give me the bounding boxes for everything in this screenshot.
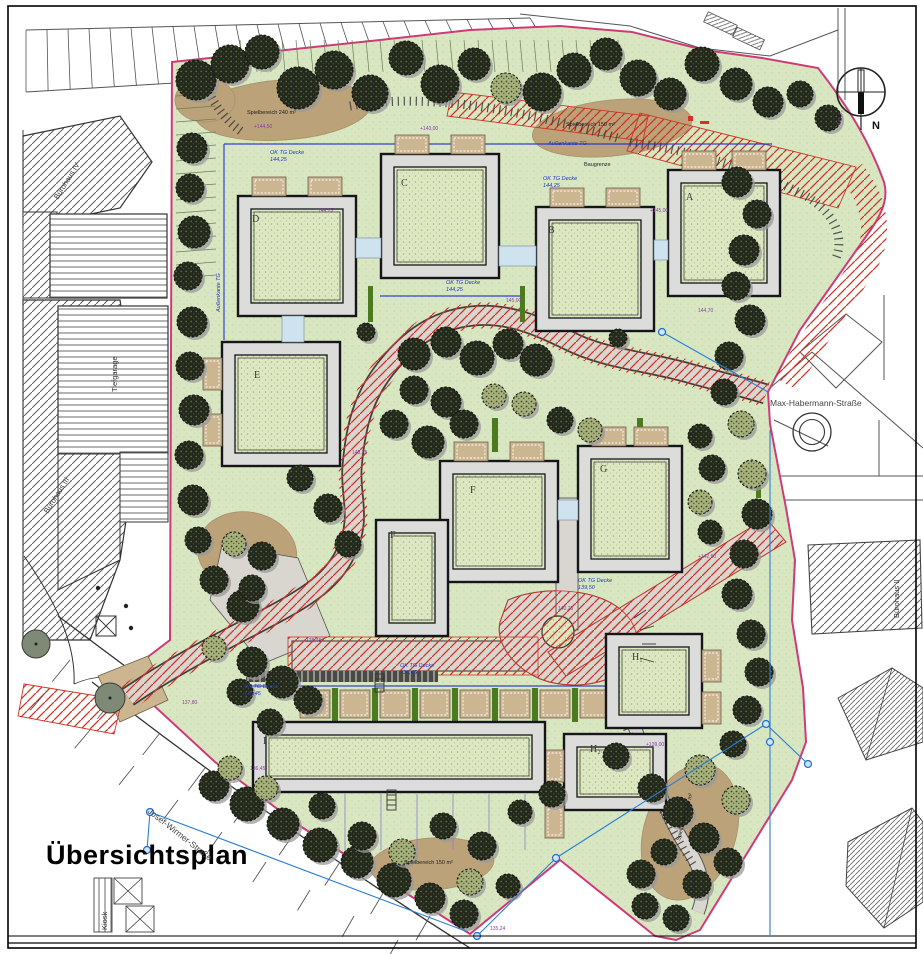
bike-rack: [704, 12, 738, 35]
existing-house: [846, 808, 923, 928]
building-I: [253, 722, 545, 792]
survey-node: [147, 809, 154, 816]
garden-terrace: [500, 690, 530, 718]
existing-tiefgarage: [58, 306, 168, 454]
garden-terrace: [460, 690, 490, 718]
kiosk-building: [94, 878, 112, 932]
building-C: [381, 135, 499, 278]
hedge: [492, 688, 498, 722]
site-plan-sheet: Übersichtsplan N ABCDEFFGH₁H₂IMax-Haberm…: [0, 0, 923, 954]
hedge: [332, 688, 338, 722]
garden-terrace: [340, 690, 370, 718]
building-B: [536, 188, 654, 331]
street-tree: [95, 683, 125, 713]
garden-terrace: [380, 690, 410, 718]
building-F: [440, 442, 558, 582]
building-E: [203, 342, 340, 466]
existing-building-buerohaus4: [23, 116, 152, 228]
hedge: [532, 688, 538, 722]
street-tree: [22, 630, 50, 658]
survey-node: [767, 739, 774, 746]
hedge: [412, 688, 418, 722]
hedge: [372, 688, 378, 722]
existing-house: [838, 668, 923, 760]
hedge: [572, 688, 578, 722]
site-plan-drawing: [0, 0, 923, 954]
survey-node: [144, 847, 151, 854]
hedge: [452, 688, 458, 722]
garden-terrace: [540, 690, 570, 718]
building-D: [238, 177, 356, 316]
survey-node: [805, 761, 812, 768]
garden-terrace: [420, 690, 450, 718]
building-F: [376, 520, 448, 636]
bike-rack: [733, 27, 765, 50]
existing-building-buerohaus2: [808, 540, 922, 634]
survey-node: [763, 721, 770, 728]
building-G: [578, 427, 682, 572]
survey-node: [659, 329, 666, 336]
survey-node: [553, 855, 560, 862]
